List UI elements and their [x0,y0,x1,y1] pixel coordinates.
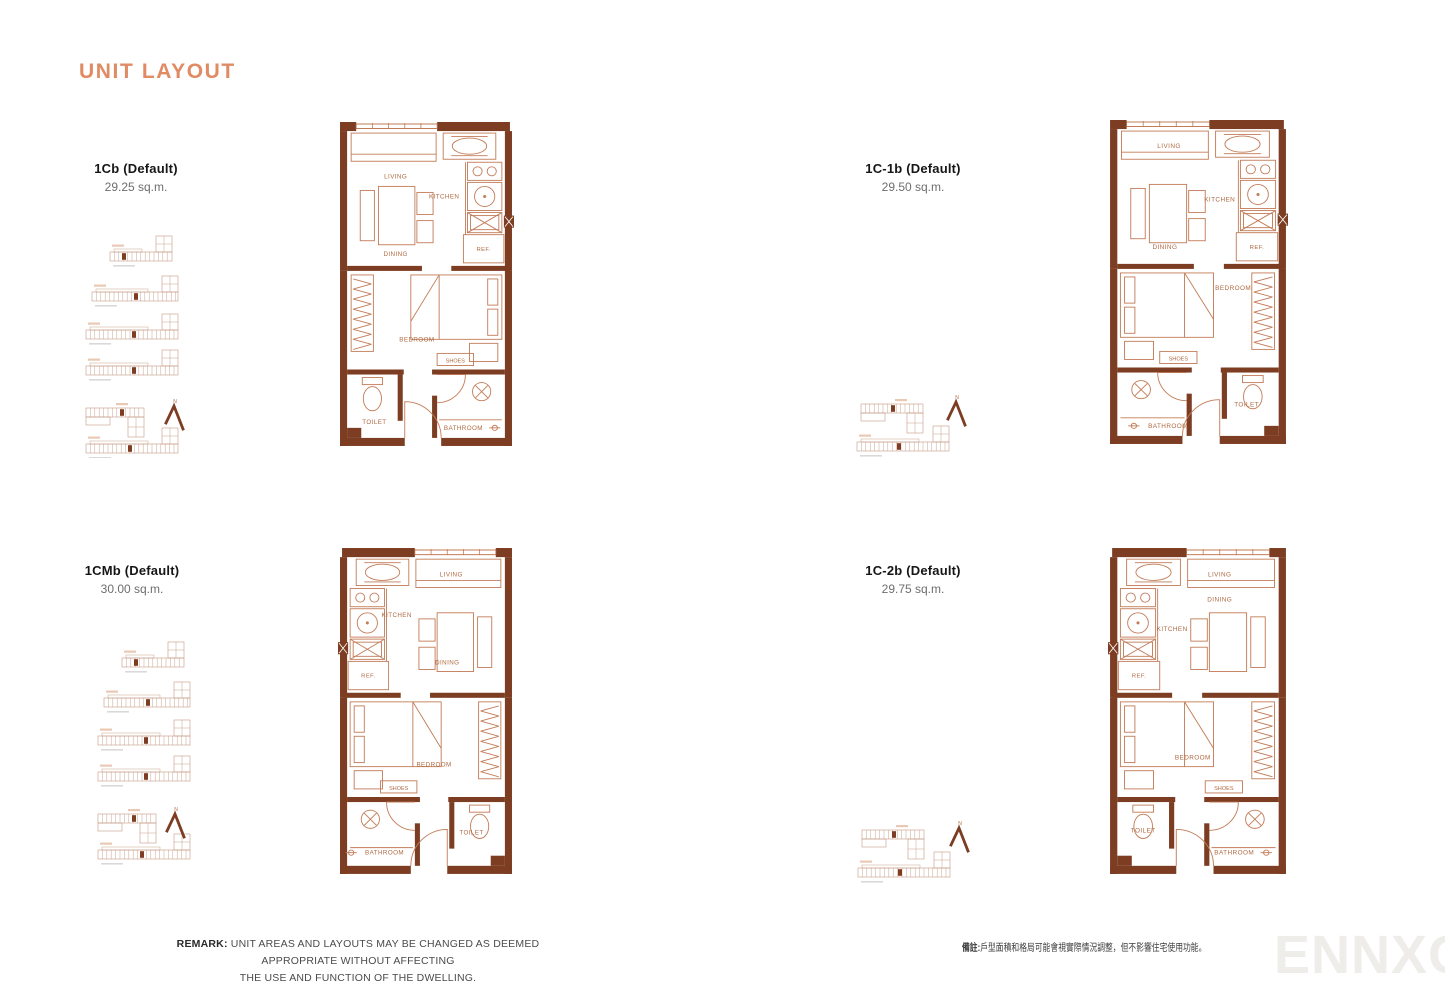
unit-name: 1CMb (Default) [66,563,198,578]
floor-plan: LIVINGKITCHENDININGBEDROOMREF.TOILETBATH… [1108,118,1288,450]
unit-layout-page: UNIT LAYOUT 1Cb (Default) 29.25 sq.m. N … [0,0,1445,992]
svg-text:SHOES: SHOES [1214,786,1234,792]
unit-label: 1C-2b (Default) 29.75 sq.m. [846,563,980,596]
svg-text:BATHROOM: BATHROOM [1148,423,1188,430]
svg-text:BEDROOM: BEDROOM [1215,285,1251,292]
remark-en: REMARK: UNIT AREAS AND LAYOUTS MAY BE CH… [138,936,578,987]
svg-text:SHOES: SHOES [446,358,465,364]
remark-line1: UNIT AREAS AND LAYOUTS MAY BE CHANGED AS… [231,938,540,967]
page-title: UNIT LAYOUT [79,60,236,84]
svg-text:BATHROOM: BATHROOM [1214,850,1254,857]
svg-text:SHOES: SHOES [1169,357,1189,363]
unit-name: 1C-1b (Default) [846,161,980,176]
unit-name: 1Cb (Default) [70,161,202,176]
remark-zh-text: 戶型面積和格局可能會視實際情況調整，但不影響住宅使用功能。 [980,943,1206,954]
svg-text:DINING: DINING [1207,597,1232,604]
svg-text:BEDROOM: BEDROOM [399,336,434,343]
floor-plan: LIVINGKITCHENDININGBEDROOMREF.TOILETBATH… [338,120,514,452]
floor-plan: LIVINGKITCHENDININGBEDROOMREF.TOILETBATH… [338,546,514,880]
svg-text:SHOES: SHOES [389,786,408,792]
svg-text:TOILET: TOILET [459,829,483,836]
brand-watermark: ENNXO [1274,924,1445,986]
svg-text:REF.: REF. [1250,245,1265,251]
unit-area: 29.50 sq.m. [846,180,980,194]
unit-label: 1C-1b (Default) 29.50 sq.m. [846,161,980,194]
key-plan [855,384,955,466]
svg-text:TOILET: TOILET [362,419,386,426]
svg-text:BATHROOM: BATHROOM [365,850,404,857]
svg-text:BEDROOM: BEDROOM [416,762,451,769]
svg-text:KITCHEN: KITCHEN [1204,197,1235,204]
svg-text:LIVING: LIVING [1157,143,1180,150]
svg-text:KITCHEN: KITCHEN [1157,626,1188,633]
svg-text:DINING: DINING [383,251,407,258]
unit-label: 1CMb (Default) 30.00 sq.m. [66,563,198,596]
north-arrow-icon: N [947,818,973,854]
north-arrow-icon: N [163,804,189,840]
svg-text:TOILET: TOILET [1131,827,1156,834]
remark-zh: 備註:戶型面積和格局可能會視實際情況調整，但不影響住宅使用功能。 [962,939,1206,954]
svg-text:LIVING: LIVING [384,173,407,180]
svg-text:DINING: DINING [1152,244,1177,251]
svg-text:BEDROOM: BEDROOM [1175,755,1211,762]
north-arrow-icon: N [162,396,188,432]
svg-text:REF.: REF. [476,247,490,253]
svg-text:REF.: REF. [361,674,375,680]
unit-area: 29.75 sq.m. [846,582,980,596]
key-plan [856,810,956,892]
remark-label: REMARK: [177,938,228,950]
svg-text:KITCHEN: KITCHEN [429,193,459,200]
north-arrow-icon: N [944,392,970,428]
unit-name: 1C-2b (Default) [846,563,980,578]
unit-area: 29.25 sq.m. [70,180,202,194]
svg-text:DINING: DINING [435,659,459,666]
svg-text:LIVING: LIVING [440,571,463,578]
unit-area: 30.00 sq.m. [66,582,198,596]
svg-text:KITCHEN: KITCHEN [381,612,411,619]
key-plan [96,638,208,872]
svg-text:LIVING: LIVING [1208,571,1231,578]
unit-label: 1Cb (Default) 29.25 sq.m. [70,161,202,194]
svg-text:BATHROOM: BATHROOM [444,425,483,432]
remark-zh-label: 備註: [962,943,980,954]
svg-text:REF.: REF. [1132,674,1147,680]
remark-line2: THE USE AND FUNCTION OF THE DWELLING. [240,972,476,984]
svg-text:TOILET: TOILET [1234,402,1259,409]
floor-plan: LIVINGKITCHENDININGBEDROOMREF.TOILETBATH… [1108,546,1288,880]
